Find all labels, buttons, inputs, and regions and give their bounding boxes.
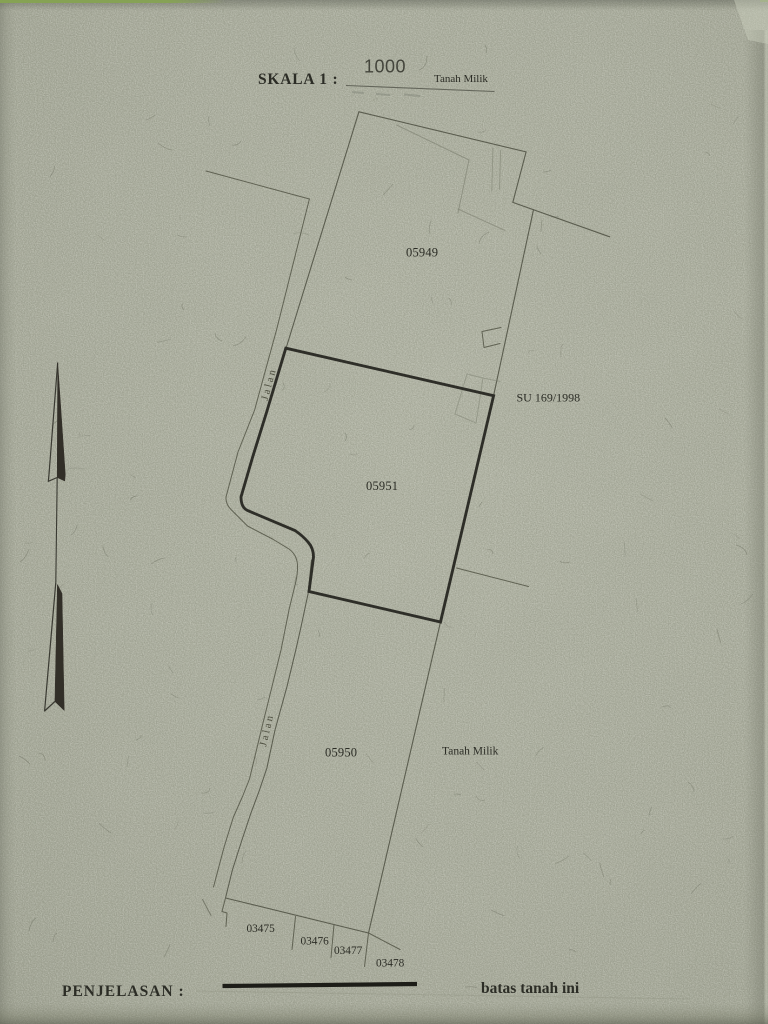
svg-text:SKALA 1 :: SKALA 1 :	[258, 71, 338, 88]
svg-text:PENJELASAN :: PENJELASAN :	[62, 983, 185, 1000]
svg-text:05950: 05950	[325, 746, 357, 760]
svg-text:03478: 03478	[376, 958, 405, 970]
svg-text:05949: 05949	[406, 246, 438, 260]
svg-text:Tanah Milik: Tanah Milik	[434, 73, 488, 85]
svg-text:Tanah Milik: Tanah Milik	[442, 746, 499, 758]
svg-text:03477: 03477	[334, 945, 363, 957]
svg-text:batas tanah ini: batas tanah ini	[481, 980, 580, 997]
svg-text:1000: 1000	[364, 57, 406, 77]
svg-text:05951: 05951	[366, 479, 398, 493]
svg-text:03476: 03476	[301, 936, 330, 948]
svg-text:03475: 03475	[247, 923, 276, 935]
svg-text:SU 169/1998: SU 169/1998	[517, 391, 581, 405]
